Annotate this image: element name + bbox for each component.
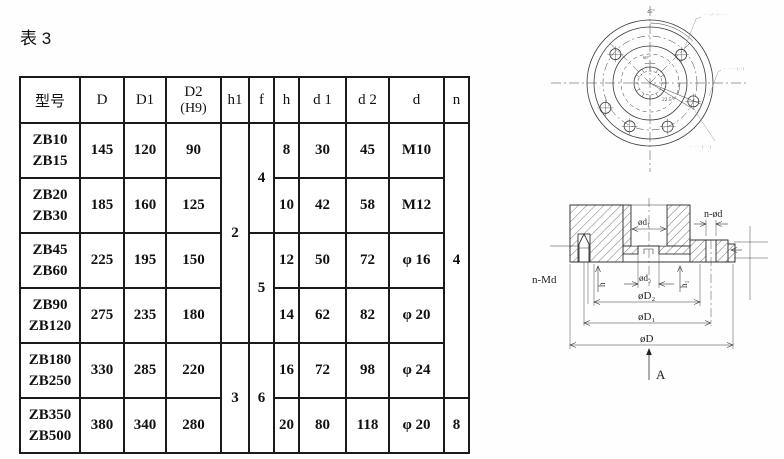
header-D2-line1: D2 xyxy=(167,84,220,101)
cell-D1: 285 xyxy=(124,343,166,398)
model-name: ZB60 xyxy=(21,261,79,282)
label-n-md: n-Md xyxy=(532,274,557,286)
cell-D: 185 xyxy=(80,178,124,233)
illegible-annotation-right: ·· ·····(··) xyxy=(722,66,745,71)
cell-d: φ 16 xyxy=(389,233,444,288)
cell-D2: 280 xyxy=(166,398,221,453)
cell-D1: 340 xyxy=(124,398,166,453)
label-D2: øD₂ xyxy=(638,290,655,302)
model-name: ZB30 xyxy=(21,206,79,227)
cell-d2: 82 xyxy=(346,288,389,343)
dimension-table: 型号 D D1 D2 (H9) h1 f h d 1 d 2 d n ZB10 … xyxy=(19,76,470,454)
label-h: h xyxy=(597,282,607,287)
cell-h: 8 xyxy=(274,123,299,178)
cell-d: M10 xyxy=(389,123,444,178)
label-A: A xyxy=(656,367,666,382)
cell-model: ZB45 ZB60 xyxy=(20,233,80,288)
label-d2: ød₂ xyxy=(639,273,651,283)
cell-D: 225 xyxy=(80,233,124,288)
cell-h1-merged: 3 xyxy=(221,343,249,453)
cell-D2: 90 xyxy=(166,123,221,178)
header-D2-line2: (H9) xyxy=(167,101,220,117)
header-D: D xyxy=(80,77,124,123)
cell-d1: 72 xyxy=(299,343,346,398)
cell-D2: 150 xyxy=(166,233,221,288)
cell-d2: 58 xyxy=(346,178,389,233)
cell-n-merged: 4 xyxy=(444,123,469,398)
cell-D2: 220 xyxy=(166,343,221,398)
radial-line-135 xyxy=(608,41,650,83)
header-D2: D2 (H9) xyxy=(166,77,221,123)
cell-d1: 42 xyxy=(299,178,346,233)
cell-d1: 50 xyxy=(299,233,346,288)
label-n-od: n-ød xyxy=(704,209,722,220)
angle-45-label: 45° xyxy=(647,8,655,15)
header-d1: d 1 xyxy=(299,77,346,123)
cell-h1-merged: 2 xyxy=(221,123,249,343)
table-row: ZB180 ZB250 330 285 220 3 6 16 72 98 φ 2… xyxy=(20,343,469,398)
bolt-holes xyxy=(597,46,701,134)
cell-model: ZB20 ZB30 xyxy=(20,178,80,233)
header-f: f xyxy=(249,77,274,123)
cell-model: ZB10 ZB15 xyxy=(20,123,80,178)
cell-D1: 195 xyxy=(124,233,166,288)
cell-D2: 125 xyxy=(166,178,221,233)
header-model: 型号 xyxy=(20,77,80,123)
cell-n-merged: 8 xyxy=(444,398,469,453)
cell-d1: 80 xyxy=(299,398,346,453)
cell-f-merged: 5 xyxy=(249,233,274,343)
cell-d2: 45 xyxy=(346,123,389,178)
model-name: ZB350 xyxy=(21,405,79,426)
model-name: ZB45 xyxy=(21,240,79,261)
radial-line-45 xyxy=(650,41,692,83)
document-page: 表 3 型号 D D1 D2 (H9) h1 f h d 1 d 2 d n Z… xyxy=(0,0,784,459)
cell-h: 10 xyxy=(274,178,299,233)
cell-d2: 98 xyxy=(346,343,389,398)
cell-D: 145 xyxy=(80,123,124,178)
cell-d: M12 xyxy=(389,178,444,233)
view-direction-arrow xyxy=(646,348,652,380)
label-d1: ød₁ xyxy=(638,217,650,227)
illegible-annotation-top: ·····/··/····· xyxy=(702,12,728,17)
header-h: h xyxy=(274,77,299,123)
model-name: ZB250 xyxy=(21,371,79,392)
header-n: n xyxy=(444,77,469,123)
label-D1: øD₁ xyxy=(638,311,655,323)
cell-h: 16 xyxy=(274,343,299,398)
cell-D: 330 xyxy=(80,343,124,398)
cell-d: φ 20 xyxy=(389,398,444,453)
cell-d2: 118 xyxy=(346,398,389,453)
header-d: d xyxy=(389,77,444,123)
label-h1: h₁ xyxy=(679,280,689,288)
model-name: ZB10 xyxy=(21,130,79,151)
cell-D1: 120 xyxy=(124,123,166,178)
angle-22-5-label: 22.5° xyxy=(662,96,674,103)
cell-f-merged: 4 xyxy=(249,123,274,233)
header-h1: h1 xyxy=(221,77,249,123)
leader-lines xyxy=(683,17,721,141)
cell-D1: 160 xyxy=(124,178,166,233)
header-D1: D1 xyxy=(124,77,166,123)
cell-d: φ 20 xyxy=(389,288,444,343)
label-D: øD xyxy=(640,333,654,345)
cell-h: 12 xyxy=(274,233,299,288)
model-name: ZB180 xyxy=(21,350,79,371)
section-view-drawing: ød₁ n-ød n-Md h h₁ ød₂ øD₂ øD₁ øD A xyxy=(528,196,784,411)
cell-d: φ 24 xyxy=(389,343,444,398)
cell-D2: 180 xyxy=(166,288,221,343)
cell-D: 380 xyxy=(80,398,124,453)
illegible-annotation-bottom: ·· ····(···) xyxy=(689,144,712,149)
model-name: ZB20 xyxy=(21,185,79,206)
model-name: ZB15 xyxy=(21,151,79,172)
cell-f-merged: 6 xyxy=(249,343,274,453)
angle-60-label: 60° xyxy=(643,55,650,60)
cell-model: ZB180 ZB250 xyxy=(20,343,80,398)
cell-D: 275 xyxy=(80,288,124,343)
table-header-row: 型号 D D1 D2 (H9) h1 f h d 1 d 2 d n xyxy=(20,77,469,123)
cell-d2: 72 xyxy=(346,233,389,288)
cell-model: ZB90 ZB120 xyxy=(20,288,80,343)
model-name: ZB90 xyxy=(21,295,79,316)
cell-model: ZB350 ZB500 xyxy=(20,398,80,453)
page-title: 表 3 xyxy=(20,24,51,49)
header-d2: d 2 xyxy=(346,77,389,123)
flange-face-view-drawing: 45° 60° 22.5° ·····/··/····· ·· ·····(··… xyxy=(543,0,784,186)
cell-D1: 235 xyxy=(124,288,166,343)
cell-h: 20 xyxy=(274,398,299,453)
cell-h: 14 xyxy=(274,288,299,343)
model-name: ZB120 xyxy=(21,316,79,337)
cell-d1: 62 xyxy=(299,288,346,343)
cell-d1: 30 xyxy=(299,123,346,178)
model-name: ZB500 xyxy=(21,426,79,447)
table-row: ZB10 ZB15 145 120 90 2 4 8 30 45 M10 4 xyxy=(20,123,469,178)
